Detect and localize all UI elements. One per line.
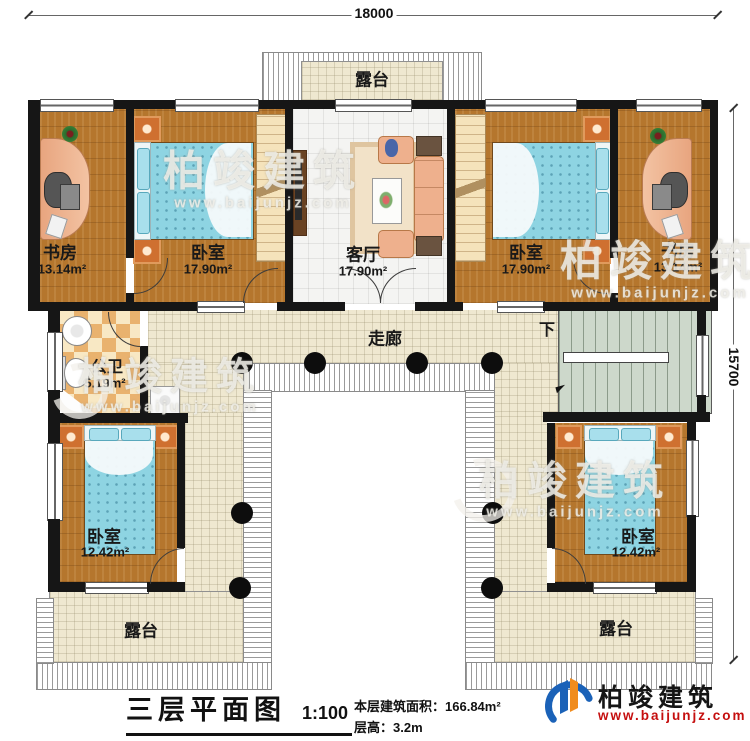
- study-right-label: 书房: [661, 243, 695, 260]
- bed-sheet: [205, 143, 251, 237]
- window: [40, 99, 114, 112]
- window: [593, 582, 657, 594]
- courtyard-edge: [243, 363, 495, 392]
- window: [696, 335, 709, 397]
- sofa: [414, 156, 444, 242]
- monitor: [652, 184, 672, 210]
- wall: [610, 293, 618, 302]
- terrace-bottom-right-floor: [493, 592, 695, 662]
- armchair: [378, 230, 414, 258]
- plant: [650, 128, 666, 144]
- pillow: [596, 148, 609, 190]
- nightstand: [656, 425, 682, 449]
- wall: [687, 515, 696, 592]
- pillow: [621, 428, 651, 441]
- terrace-door: [335, 99, 412, 112]
- window: [686, 440, 699, 517]
- pillow: [137, 148, 150, 190]
- wall: [447, 108, 455, 302]
- pillow: [589, 428, 619, 441]
- floor-height-line: 层高：3.2m: [354, 717, 501, 738]
- pillow: [596, 192, 609, 234]
- bed-sheet: [493, 143, 539, 237]
- bedroom-bottom-left-area: 12.42m²: [81, 546, 129, 559]
- floor-area-line: 本层建筑面积：166.84m²: [354, 696, 501, 717]
- pillow: [121, 428, 151, 441]
- column: [229, 577, 251, 599]
- wall: [543, 302, 718, 311]
- column: [231, 502, 253, 524]
- drawing-title: 三层平面图: [126, 688, 286, 727]
- wall: [126, 293, 134, 302]
- side-table: [416, 236, 442, 256]
- bedroom-top-right-area: 17.90m²: [502, 263, 550, 276]
- wall: [697, 395, 706, 412]
- column: [481, 577, 503, 599]
- terrace-top-label: 露台: [355, 72, 389, 89]
- wardrobe: [455, 114, 486, 262]
- eave-hatch: [36, 662, 272, 690]
- living-room-area: 17.90m²: [339, 265, 387, 278]
- terrace-bottom-left-label: 露台: [124, 623, 158, 640]
- wall: [126, 108, 134, 258]
- eave-hatch: [36, 598, 54, 664]
- bedroom-bottom-right-area: 12.42m²: [612, 546, 660, 559]
- eave-hatch: [695, 598, 713, 664]
- wall: [655, 582, 695, 592]
- wardrobe: [256, 114, 287, 262]
- wall: [547, 423, 555, 548]
- nightstand: [556, 425, 582, 449]
- right-dimension-label: 15700: [726, 345, 742, 390]
- wall: [415, 302, 463, 311]
- drawing-title-block: 三层平面图 1:100: [126, 688, 352, 736]
- column: [481, 352, 503, 374]
- side-table: [416, 136, 442, 156]
- pillow: [89, 428, 119, 441]
- flower-decor: [378, 190, 394, 210]
- wall: [140, 346, 148, 414]
- top-dimension-label: 18000: [352, 5, 397, 21]
- nightstand: [583, 116, 611, 142]
- sink: [62, 316, 92, 346]
- window: [497, 301, 545, 313]
- wall: [710, 100, 718, 311]
- wall: [28, 100, 40, 311]
- wall: [112, 100, 175, 109]
- brand-website: www.baijunjz.com: [598, 708, 747, 723]
- wall: [277, 302, 345, 311]
- window: [85, 582, 149, 594]
- stairs-direction-label: 下: [539, 323, 555, 339]
- nightstand: [133, 116, 161, 142]
- wall: [257, 100, 335, 109]
- wall: [543, 412, 710, 422]
- study-right-area: 13.14m²: [654, 261, 702, 274]
- wall: [610, 108, 618, 258]
- brand-logo-svg: [538, 668, 596, 726]
- person: [385, 139, 398, 157]
- column: [406, 352, 428, 374]
- window: [197, 301, 245, 313]
- bedroom-top-left-area: 17.90m²: [184, 263, 232, 276]
- study-left-area: 13.14m²: [38, 263, 86, 276]
- courtyard-edge: [243, 390, 272, 664]
- study-left-label: 书房: [43, 245, 77, 262]
- window: [175, 99, 259, 112]
- wall: [575, 100, 636, 109]
- floor-plan-sheet: 18000 15700: [0, 0, 750, 741]
- window: [636, 99, 702, 112]
- pillow: [137, 192, 150, 234]
- window: [47, 443, 63, 521]
- drawing-scale: 1:100: [302, 703, 348, 724]
- drawing-info: 本层建筑面积：166.84m² 层高：3.2m: [354, 696, 501, 739]
- wall: [285, 108, 293, 302]
- wall: [177, 423, 185, 548]
- wall: [48, 582, 85, 592]
- bedroom-top-right-label: 卧室: [509, 245, 543, 262]
- corridor-floor: [493, 363, 558, 412]
- column: [231, 352, 253, 374]
- washing-machine: [150, 386, 180, 415]
- terrace-bottom-right-label: 露台: [599, 621, 633, 638]
- brand-logo-icon: [538, 668, 596, 726]
- wall: [48, 302, 60, 332]
- plant: [62, 126, 78, 142]
- window: [485, 99, 577, 112]
- wall: [697, 302, 706, 335]
- corridor-floor: [185, 413, 243, 593]
- column: [304, 352, 326, 374]
- stair-handrail: [563, 352, 669, 363]
- monitor: [60, 184, 80, 210]
- bedroom-bottom-left-label: 卧室: [87, 529, 121, 546]
- courtyard-edge: [465, 390, 495, 664]
- bedroom-bottom-right-label: 卧室: [621, 529, 655, 546]
- tv: [295, 162, 302, 220]
- wall: [547, 583, 555, 592]
- living-room-label: 客厅: [346, 247, 380, 264]
- corridor-label: 走廊: [368, 331, 402, 348]
- bedroom-top-left-label: 卧室: [191, 245, 225, 262]
